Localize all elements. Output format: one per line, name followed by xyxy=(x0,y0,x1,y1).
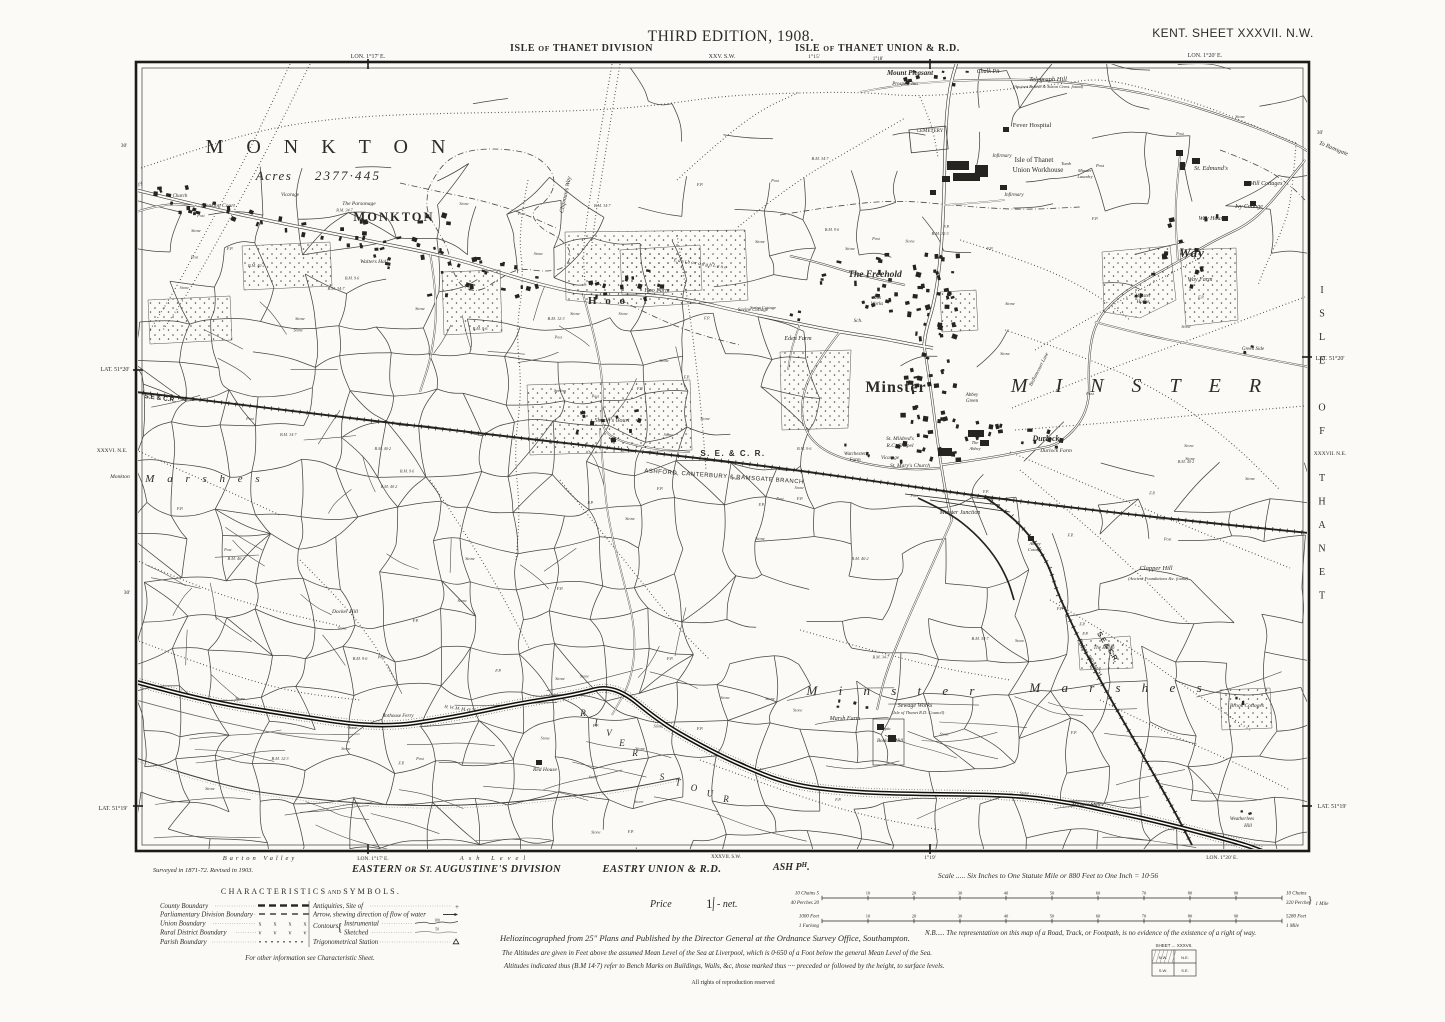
svg-text:Stone: Stone xyxy=(415,306,425,311)
svg-text:EASTRY UNION & R.D.: EASTRY UNION & R.D. xyxy=(602,864,722,875)
svg-text:M a r s h e s: M a r s h e s xyxy=(144,473,264,485)
svg-text:N: N xyxy=(1318,544,1325,555)
svg-text:Stone: Stone xyxy=(191,228,201,233)
svg-text:Ivy Cottage: Ivy Cottage xyxy=(1234,204,1263,210)
svg-text:L: L xyxy=(1319,332,1325,343)
svg-text:Minster: Minster xyxy=(1134,294,1151,299)
svg-text:B.M. 34·7: B.M. 34·7 xyxy=(280,432,297,437)
svg-text:Sketched: Sketched xyxy=(344,930,369,937)
svg-text:S. E. & C. R.: S. E. & C. R. xyxy=(700,449,765,458)
svg-text:F.P.: F.P. xyxy=(757,502,764,507)
svg-text:F.P.: F.P. xyxy=(1070,730,1077,735)
svg-text:Stone: Stone xyxy=(755,239,765,244)
svg-text:Way House: Way House xyxy=(1199,216,1226,222)
svg-text:Stone: Stone xyxy=(457,598,466,603)
svg-text:+: + xyxy=(455,903,459,911)
svg-text:F.P.: F.P. xyxy=(586,500,593,505)
svg-text:Stone: Stone xyxy=(1235,114,1245,119)
svg-text:Parish Boundary: Parish Boundary xyxy=(159,939,208,946)
svg-text:Chalk Pit: Chalk Pit xyxy=(977,69,1000,75)
svg-text:Gas: Gas xyxy=(873,296,881,301)
svg-text:E: E xyxy=(618,738,625,748)
svg-text:THIRD EDITION, 1908.: THIRD EDITION, 1908. xyxy=(648,28,815,45)
svg-text:Post: Post xyxy=(553,335,562,340)
svg-text:B.M. 12·3: B.M. 12·3 xyxy=(272,756,289,761)
svg-text:50: 50 xyxy=(435,928,439,932)
svg-text:F.P.: F.P. xyxy=(397,761,404,766)
svg-text:T: T xyxy=(1319,591,1325,602)
svg-text:Post: Post xyxy=(591,393,600,398)
svg-text:B.M. 9·6: B.M. 9·6 xyxy=(797,446,812,451)
svg-text:Church: Church xyxy=(173,194,188,199)
svg-text:Post: Post xyxy=(871,236,880,241)
svg-text:XXXVII. N.E.: XXXVII. N.E. xyxy=(1314,451,1347,457)
svg-text:B.M. 9·6: B.M. 9·6 xyxy=(473,326,489,331)
svg-text:A: A xyxy=(1318,520,1326,531)
svg-text:60: 60 xyxy=(1096,914,1101,919)
svg-text:LON. 1°17' E.: LON. 1°17' E. xyxy=(357,855,389,862)
svg-text:Mount Pleasant: Mount Pleasant xyxy=(886,69,934,77)
svg-text:10 Chains: 10 Chains xyxy=(1286,892,1306,897)
svg-text:Stone: Stone xyxy=(295,316,305,321)
svg-text:All rights of reproduction res: All rights of reproduction reserved xyxy=(691,979,774,986)
svg-text:LAT. 51°20': LAT. 51°20' xyxy=(100,366,129,373)
svg-text:Stone: Stone xyxy=(634,799,643,804)
svg-text:F.P.: F.P. xyxy=(1091,216,1098,221)
svg-text:- net.: - net. xyxy=(717,899,738,910)
svg-text:30: 30 xyxy=(958,914,963,919)
svg-text:LON. 1°20' E.: LON. 1°20' E. xyxy=(1188,52,1223,59)
svg-text:M a r s h e s: M a r s h e s xyxy=(1028,680,1210,695)
svg-text:Spring: Spring xyxy=(554,388,567,393)
svg-text:Post: Post xyxy=(415,756,424,761)
svg-text:B.M. 34·7: B.M. 34·7 xyxy=(872,655,889,660)
svg-text:F.P.: F.P. xyxy=(942,224,949,229)
svg-text:Works: Works xyxy=(871,302,883,307)
svg-text:Rothouse Ferry: Rothouse Ferry xyxy=(381,714,414,719)
svg-text:Post: Post xyxy=(909,493,918,498)
svg-text:ISLE OF THANET DIVISION: ISLE OF THANET DIVISION xyxy=(510,43,653,54)
svg-text:XXXVI. N.E.: XXXVI. N.E. xyxy=(97,448,128,454)
svg-text:MONKTON: MONKTON xyxy=(206,136,469,158)
svg-text:B.M. 40·2: B.M. 40·2 xyxy=(1178,459,1195,464)
svg-text:Post: Post xyxy=(517,211,526,216)
svg-text:40 Perches 20: 40 Perches 20 xyxy=(791,901,820,906)
svg-text:Contours: Contours xyxy=(313,923,339,930)
svg-text:F.P.: F.P. xyxy=(1067,533,1074,538)
svg-text:Stone: Stone xyxy=(795,485,804,490)
svg-text:Stone: Stone xyxy=(765,696,775,701)
svg-text:1: 1 xyxy=(706,896,713,911)
svg-text:70: 70 xyxy=(1142,891,1147,896)
svg-text:Minster: Minster xyxy=(1077,168,1092,173)
svg-text:30: 30 xyxy=(958,891,963,896)
svg-text:B.M. 9·6: B.M. 9·6 xyxy=(345,275,360,280)
svg-text:10: 10 xyxy=(866,891,871,896)
svg-text:90: 90 xyxy=(1234,914,1239,919)
svg-text:County Boundary: County Boundary xyxy=(160,903,209,910)
svg-text:(Ancient British & Saxon Cems.: (Ancient British & Saxon Cems. found) xyxy=(1013,84,1084,89)
svg-text:F.P.: F.P. xyxy=(226,246,233,251)
svg-text:B.M. 40·2: B.M. 40·2 xyxy=(228,556,246,561)
svg-text:EASTERN OR ST. AUGUSTINE'S DI: EASTERN OR ST. AUGUSTINE'S DIVISION xyxy=(351,864,561,875)
svg-text:Scale ..... Six Inches to One: Scale ..... Six Inches to One Statute Mi… xyxy=(938,871,1158,880)
svg-text:50: 50 xyxy=(1050,891,1055,896)
svg-text:Post: Post xyxy=(223,547,232,552)
svg-text:ISLE OF THANET UNION & R.D.: ISLE OF THANET UNION & R.D. xyxy=(795,43,960,54)
svg-text:20: 20 xyxy=(912,914,917,919)
svg-text:Clapper Hill: Clapper Hill xyxy=(1139,565,1172,572)
svg-text:Stone: Stone xyxy=(1015,638,1024,643)
svg-text:The Altitudes are given in Fee: The Altitudes are given in Feet above th… xyxy=(502,949,932,957)
svg-text:Infirmary: Infirmary xyxy=(1003,193,1024,198)
svg-text:Docker Hill: Docker Hill xyxy=(331,609,359,615)
svg-text:Stone: Stone xyxy=(591,829,600,834)
svg-text:Cottage: Cottage xyxy=(1028,547,1042,552)
svg-text:v: v xyxy=(289,931,292,937)
svg-text:Stone: Stone xyxy=(625,516,635,521)
svg-text:F.P.: F.P. xyxy=(412,618,419,623)
svg-text:70: 70 xyxy=(1142,914,1147,919)
svg-text:Green Side: Green Side xyxy=(1242,347,1265,352)
svg-text:x: x xyxy=(289,921,292,927)
svg-text:Post: Post xyxy=(775,496,784,501)
svg-text:Minster Sluice: Minster Sluice xyxy=(1071,802,1104,808)
svg-text:F.P.: F.P. xyxy=(656,486,663,491)
svg-text:KENT. SHEET XXXVII. N.W.: KENT. SHEET XXXVII. N.W. xyxy=(1152,26,1313,40)
svg-text:30': 30' xyxy=(121,143,128,149)
svg-text:40: 40 xyxy=(1004,891,1009,896)
svg-text:30': 30' xyxy=(1317,130,1324,136)
svg-text:v: v xyxy=(304,931,307,937)
svg-text:Durlock Farm: Durlock Farm xyxy=(1039,448,1072,454)
svg-text:{: { xyxy=(337,920,343,934)
svg-text:F.P.: F.P. xyxy=(627,829,634,834)
svg-text:B.M. 9·6: B.M. 9·6 xyxy=(353,656,369,661)
svg-text:Stone: Stone xyxy=(664,432,673,437)
svg-text:Stone: Stone xyxy=(1005,301,1015,306)
svg-text:v: v xyxy=(274,931,277,937)
svg-text:S.E.: S.E. xyxy=(1181,968,1189,973)
svg-text:M i n s t e r: M i n s t e r xyxy=(806,683,984,698)
svg-text:Vicarage: Vicarage xyxy=(881,456,900,461)
svg-text:B.M. 34·7: B.M. 34·7 xyxy=(972,636,990,641)
svg-text:10: 10 xyxy=(866,914,871,919)
svg-text:Stone: Stone xyxy=(793,707,802,712)
svg-text:Green: Green xyxy=(966,399,979,404)
svg-text:Stone: Stone xyxy=(659,358,668,363)
svg-text:Stone: Stone xyxy=(337,626,346,631)
svg-text:F.P.: F.P. xyxy=(796,496,803,501)
svg-text:B.M. 40·2: B.M. 40·2 xyxy=(375,446,392,451)
svg-text:F.P.: F.P. xyxy=(982,489,989,494)
svg-text:LON. 1°20' E.: LON. 1°20' E. xyxy=(1206,854,1238,861)
svg-text:Antiquities, Site of: Antiquities, Site of xyxy=(312,903,364,910)
svg-text:F.P.: F.P. xyxy=(1197,294,1204,299)
svg-text:E: E xyxy=(1319,356,1325,367)
svg-text:F.P.: F.P. xyxy=(1148,491,1155,496)
svg-text:Price: Price xyxy=(649,899,672,910)
svg-text:Stone: Stone xyxy=(755,536,765,541)
svg-text:F.P.: F.P. xyxy=(592,723,599,728)
svg-text:5280 Feet: 5280 Feet xyxy=(1286,915,1307,920)
svg-text:Stone: Stone xyxy=(1000,351,1010,356)
svg-text:Instrumental: Instrumental xyxy=(343,920,379,927)
svg-text:40: 40 xyxy=(1004,914,1009,919)
svg-text:Watchester: Watchester xyxy=(844,452,866,457)
svg-text:Stone: Stone xyxy=(845,246,855,251)
svg-text:Hoo Farm: Hoo Farm xyxy=(643,288,670,294)
svg-text:Minster Junction: Minster Junction xyxy=(939,510,981,516)
svg-text:House: House xyxy=(1136,300,1151,305)
svg-text:Surveyed in 1871-72. Revised i: Surveyed in 1871-72. Revised in 1903. xyxy=(153,867,254,874)
svg-text:I: I xyxy=(1320,285,1323,296)
svg-text:80: 80 xyxy=(1188,891,1193,896)
svg-text:1 Mile: 1 Mile xyxy=(1286,924,1300,929)
svg-text:LON. 1°17' E.: LON. 1°17' E. xyxy=(351,53,386,60)
svg-text:B.M. 40·2: B.M. 40·2 xyxy=(381,484,398,489)
svg-text:U: U xyxy=(707,789,714,799)
svg-text:Stone: Stone xyxy=(205,786,215,791)
svg-text:Hill: Hill xyxy=(1243,824,1252,829)
svg-text:Post: Post xyxy=(731,476,740,481)
svg-text:Stone: Stone xyxy=(720,695,729,700)
svg-text:Heliozincographed from 25" Pla: Heliozincographed from 25" Plans and Pub… xyxy=(499,933,910,943)
svg-text:F.P.: F.P. xyxy=(176,506,183,511)
svg-text:30': 30' xyxy=(124,590,131,596)
svg-text:St. Edmund's: St. Edmund's xyxy=(1194,165,1228,172)
svg-text:MONKTON: MONKTON xyxy=(353,210,434,224)
svg-text:O: O xyxy=(1318,403,1325,414)
svg-text:Monkton: Monkton xyxy=(109,474,130,480)
svg-text:Laundry: Laundry xyxy=(1076,174,1092,179)
svg-text:Union Workhouse: Union Workhouse xyxy=(1013,166,1064,174)
svg-text:Way: Way xyxy=(1179,245,1205,260)
svg-text:F.P.: F.P. xyxy=(703,315,710,320)
svg-text:Post: Post xyxy=(770,178,779,183)
svg-text:Post: Post xyxy=(245,416,254,421)
svg-text:Stone: Stone xyxy=(534,251,543,256)
svg-text:The Parsonage: The Parsonage xyxy=(342,201,376,207)
svg-text:MINSTER: MINSTER xyxy=(1010,375,1289,397)
svg-text:R.C. Chapel: R.C. Chapel xyxy=(885,443,914,449)
svg-text:Marsh Farm: Marsh Farm xyxy=(829,716,861,722)
svg-text:N.E.: N.E. xyxy=(1181,955,1189,960)
svg-text:10 Chains 5: 10 Chains 5 xyxy=(795,892,820,897)
svg-text:F.P.: F.P. xyxy=(1081,631,1088,636)
svg-text:B.M. 12·3: B.M. 12·3 xyxy=(932,231,949,236)
svg-text:x: x xyxy=(259,921,262,927)
svg-text:Stone: Stone xyxy=(555,676,565,681)
svg-text:Farm: Farm xyxy=(848,458,861,463)
svg-text:T: T xyxy=(1319,473,1325,484)
svg-text:Stone: Stone xyxy=(1184,443,1193,448)
svg-text:B.M. 40·2: B.M. 40·2 xyxy=(248,263,265,268)
svg-text:F.P.: F.P. xyxy=(494,668,501,673)
svg-text:N.W.: N.W. xyxy=(1159,955,1168,960)
svg-text:R: R xyxy=(579,708,586,718)
svg-text:LAT. 51°19': LAT. 51°19' xyxy=(1317,803,1346,810)
svg-text:v: v xyxy=(259,931,262,937)
svg-text:F.P.: F.P. xyxy=(696,182,703,187)
svg-text:N.B..... The representation on: N.B..... The representation on this map … xyxy=(924,929,1256,937)
svg-text:B.M. 40·2: B.M. 40·2 xyxy=(852,556,870,561)
svg-text:LAT. 51°19': LAT. 51°19' xyxy=(98,805,127,812)
svg-text:XXXVII. S.W.: XXXVII. S.W. xyxy=(711,855,741,860)
svg-text:B.M. 34·7: B.M. 34·7 xyxy=(328,286,346,291)
svg-text:H o o: H o o xyxy=(588,295,628,307)
svg-text:Trigonometrical Station: Trigonometrical Station xyxy=(313,939,379,946)
svg-text:2377·445: 2377·445 xyxy=(315,168,381,183)
svg-text:Stone: Stone xyxy=(589,774,598,779)
svg-text:Way Farm: Way Farm xyxy=(1188,277,1214,283)
svg-text:Abbey: Abbey xyxy=(968,446,980,451)
svg-text:Stone: Stone xyxy=(1020,790,1029,795)
svg-text:F: F xyxy=(1319,426,1325,437)
svg-text:C H A R A C T E R I S T I C S: C H A R A C T E R I S T I C S AND S Y M … xyxy=(221,887,399,896)
svg-text:Sewage Works: Sewage Works xyxy=(898,703,933,709)
svg-text:Post: Post xyxy=(190,254,199,259)
svg-text:Brook Cottages: Brook Cottages xyxy=(1230,703,1264,709)
svg-text:E: E xyxy=(1319,567,1325,578)
svg-text:CEMETERY: CEMETERY xyxy=(917,129,944,134)
svg-text:B.M. 34·7: B.M. 34·7 xyxy=(594,203,611,208)
svg-text:Post: Post xyxy=(196,213,205,218)
svg-text:XXV. S.W.: XXV. S.W. xyxy=(709,54,736,60)
svg-text:The: The xyxy=(972,440,979,445)
svg-text:Parliamentary Division Boundar: Parliamentary Division Boundary xyxy=(159,912,254,919)
svg-text:Prospect Inn: Prospect Inn xyxy=(891,82,918,87)
svg-text:Telegraph Hill: Telegraph Hill xyxy=(1029,76,1067,83)
svg-text:F.P.: F.P. xyxy=(834,797,841,802)
svg-text:}: } xyxy=(1308,895,1313,906)
svg-text:Stone: Stone xyxy=(1181,324,1190,329)
svg-text:F.P.: F.P. xyxy=(1056,606,1063,611)
svg-text:Union Boundary: Union Boundary xyxy=(160,920,206,927)
svg-text:20: 20 xyxy=(912,891,917,896)
svg-text:x: x xyxy=(274,921,277,927)
svg-text:Stone: Stone xyxy=(570,311,580,316)
svg-text:Barton Valley: Barton Valley xyxy=(223,855,298,862)
svg-text:St. Mary's Church: St. Mary's Church xyxy=(890,463,930,469)
svg-text:The Freehold: The Freehold xyxy=(848,270,902,280)
svg-text:100: 100 xyxy=(434,918,440,922)
svg-text:1 Furlong: 1 Furlong xyxy=(799,924,820,929)
svg-text:80: 80 xyxy=(1188,914,1193,919)
svg-text:Eden Farm: Eden Farm xyxy=(783,336,812,342)
svg-text:Stone: Stone xyxy=(180,285,189,290)
svg-text:Mill Cottages: Mill Cottages xyxy=(1249,181,1283,187)
svg-text:S.W.: S.W. xyxy=(1159,968,1167,973)
svg-text:B.M. 9·6: B.M. 9·6 xyxy=(825,227,840,232)
svg-text:Post: Post xyxy=(377,655,386,660)
svg-text:Bobland Hill: Bobland Hill xyxy=(877,739,904,744)
svg-text:(Ancient Foundations &c. found: (Ancient Foundations &c. found) xyxy=(1128,576,1188,581)
svg-text:B.M. 34·7: B.M. 34·7 xyxy=(336,208,353,213)
svg-text:S: S xyxy=(660,772,665,782)
svg-text:Walters Hall: Walters Hall xyxy=(360,259,388,265)
svg-text:Infirmary: Infirmary xyxy=(991,154,1012,159)
svg-text:Tomb: Tomb xyxy=(1061,161,1072,166)
svg-text:60: 60 xyxy=(1096,891,1101,896)
svg-text:F.P.: F.P. xyxy=(683,375,690,380)
svg-text:F.P.: F.P. xyxy=(986,246,993,251)
svg-text:Vicarage: Vicarage xyxy=(281,193,300,198)
svg-text:Stone: Stone xyxy=(905,239,914,244)
svg-text:Sheriff's Court: Sheriff's Court xyxy=(594,417,629,424)
svg-text:Fever Hospital: Fever Hospital xyxy=(1013,122,1052,129)
svg-text:1°19': 1°19' xyxy=(924,854,935,861)
svg-text:Stone: Stone xyxy=(635,746,645,751)
svg-text:Stone: Stone xyxy=(341,746,350,751)
svg-text:For other information see Char: For other information see Characteristic… xyxy=(244,955,375,962)
svg-text:F.P.: F.P. xyxy=(696,726,703,731)
svg-text:Post: Post xyxy=(1095,163,1105,168)
svg-text:H: H xyxy=(1318,497,1325,508)
svg-text:Red House: Red House xyxy=(532,767,558,773)
svg-text:B.M. 34·7: B.M. 34·7 xyxy=(812,156,830,161)
svg-text:SHEET ... XXXVII.: SHEET ... XXXVII. xyxy=(1156,943,1193,948)
svg-text:O: O xyxy=(691,783,698,793)
svg-text:Septic: Septic xyxy=(881,726,891,731)
svg-text:Stone: Stone xyxy=(348,725,357,730)
svg-text:F.P.: F.P. xyxy=(666,656,673,661)
svg-text:Post: Post xyxy=(1155,516,1164,521)
svg-text:Sch.: Sch. xyxy=(854,319,862,324)
svg-text:Stone: Stone xyxy=(465,556,475,561)
svg-text:Abbey: Abbey xyxy=(965,393,979,398)
svg-text:90: 90 xyxy=(1234,891,1239,896)
svg-text:Stone: Stone xyxy=(235,696,245,701)
svg-text:Post: Post xyxy=(1175,131,1184,136)
svg-text:Swine Cottage: Swine Cottage xyxy=(750,305,776,310)
svg-text:Post: Post xyxy=(1085,391,1094,396)
svg-text:1°15': 1°15' xyxy=(808,53,819,60)
svg-text:B.M. 9·6: B.M. 9·6 xyxy=(400,468,415,473)
svg-text:x: x xyxy=(304,921,307,927)
svg-text:Altitudes indicated thus (B.M: Altitudes indicated thus (B.M 14·7) refe… xyxy=(503,962,945,970)
svg-text:Stone: Stone xyxy=(293,328,302,333)
svg-text:(Isle of Thanet R.D. Council): (Isle of Thanet R.D. Council) xyxy=(892,710,945,715)
svg-text:Stone: Stone xyxy=(700,416,710,421)
svg-text:Stone: Stone xyxy=(459,201,468,206)
svg-text:Stone: Stone xyxy=(653,724,662,729)
svg-text:Rural District Boundary: Rural District Boundary xyxy=(159,930,227,937)
svg-text:Durlock: Durlock xyxy=(1031,434,1059,443)
svg-text:S: S xyxy=(1319,309,1325,320)
svg-text:Acres: Acres xyxy=(255,168,293,183)
svg-text:Stone: Stone xyxy=(1245,476,1255,481)
svg-text:Stone: Stone xyxy=(619,311,628,316)
svg-text:F.P.: F.P. xyxy=(556,586,563,591)
svg-text:Stone: Stone xyxy=(580,673,589,678)
svg-text:F.P.: F.P. xyxy=(1078,621,1085,626)
svg-text:Stone: Stone xyxy=(541,735,550,740)
svg-text:1 Mile: 1 Mile xyxy=(1316,902,1330,907)
svg-text:St. Mildred's: St. Mildred's xyxy=(886,436,914,442)
svg-text:Isle of Thanet: Isle of Thanet xyxy=(1015,156,1054,164)
svg-text:1000 Feet: 1000 Feet xyxy=(799,915,820,920)
svg-text:The Hatch: The Hatch xyxy=(1094,646,1115,651)
svg-text:Ash Level: Ash Level xyxy=(459,855,530,862)
svg-text:Weatherlees: Weatherlees xyxy=(1230,817,1254,822)
svg-text:Minster: Minster xyxy=(865,379,926,396)
svg-text:Abbey: Abbey xyxy=(1028,541,1040,546)
svg-text:Monkton Court: Monkton Court xyxy=(200,203,235,209)
svg-text:R: R xyxy=(722,794,729,804)
svg-text:B.M. 12·3: B.M. 12·3 xyxy=(548,316,565,321)
svg-text:Post: Post xyxy=(1163,537,1172,542)
